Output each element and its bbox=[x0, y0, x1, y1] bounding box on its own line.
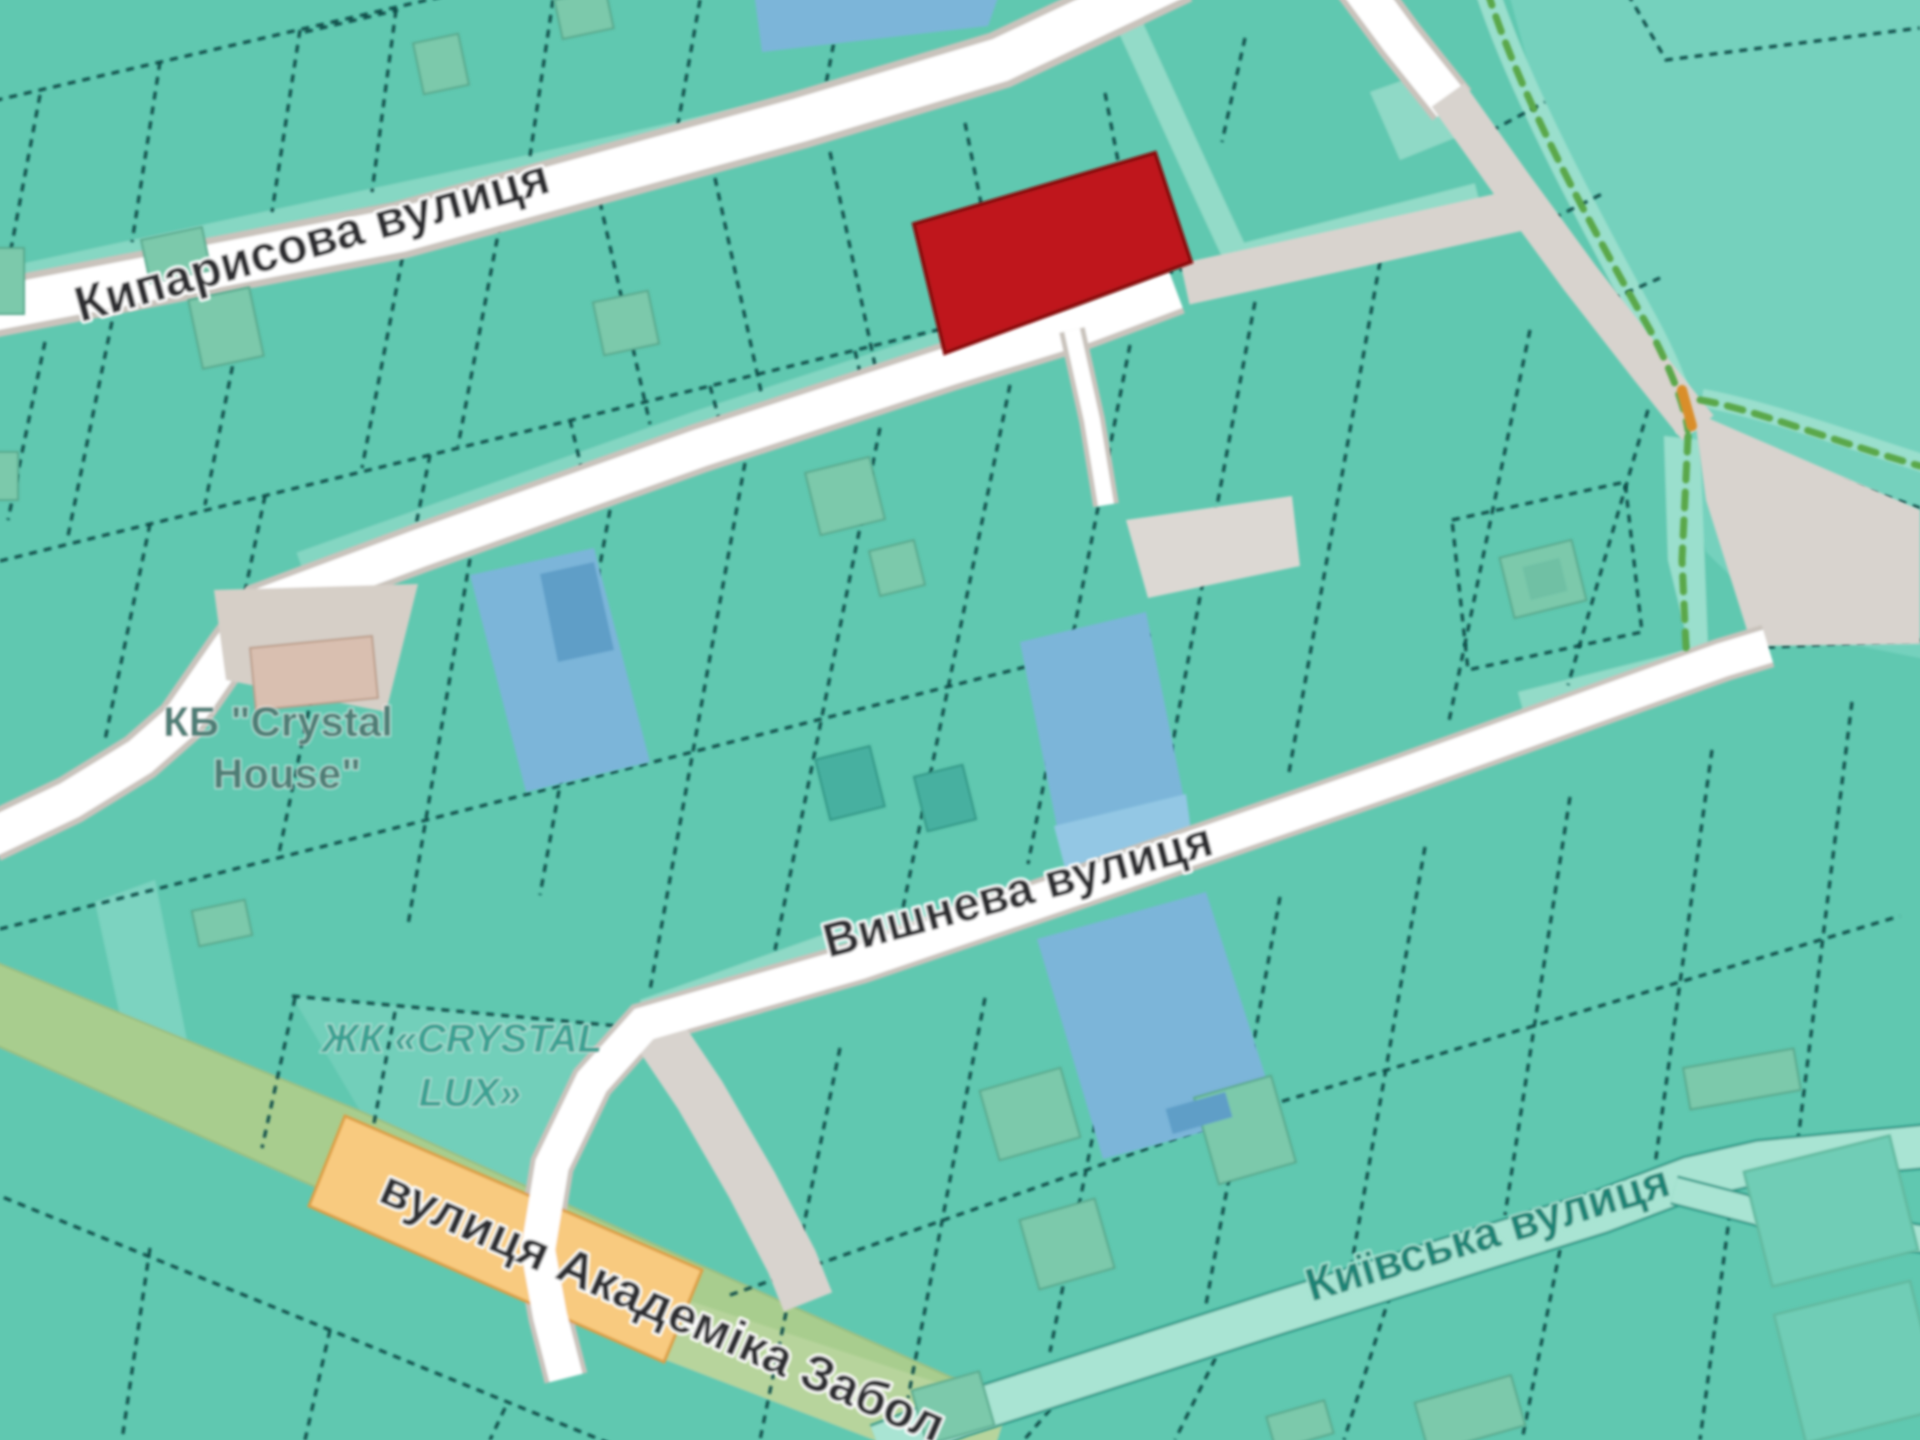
svg-text:House": House" bbox=[213, 750, 361, 797]
svg-text:ЖК «CRYSTAL: ЖК «CRYSTAL bbox=[320, 1017, 602, 1061]
svg-text:КБ "Crystal: КБ "Crystal bbox=[163, 698, 393, 745]
svg-text:LUX»: LUX» bbox=[419, 1071, 521, 1115]
